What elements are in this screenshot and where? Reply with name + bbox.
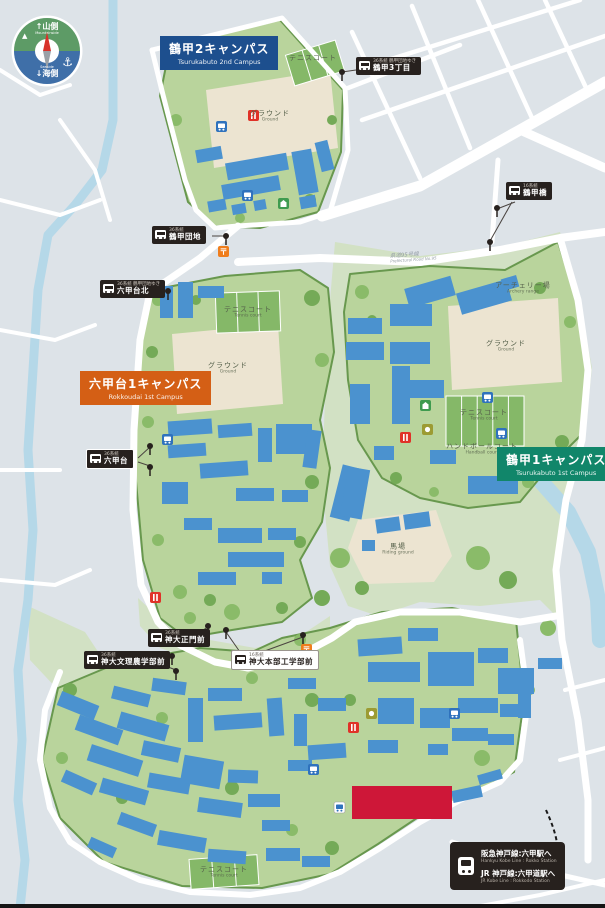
building [228, 769, 258, 783]
bus-stop-label-shindai-seimon-mae: 36系統神大正門前 [148, 629, 210, 647]
bottom-edge-bar [0, 904, 605, 908]
building [518, 688, 531, 718]
tree [56, 752, 68, 764]
building [282, 490, 308, 502]
restaurant-icon [400, 432, 411, 443]
hankyu-line-access: 阪急神戸線:六甲駅へ Hankyu Kobe Line : Rokko Stat… [481, 848, 557, 864]
tree [327, 115, 337, 125]
bus-icon [151, 633, 162, 642]
building [538, 658, 562, 669]
archery-range-label: アーチェリー場Archery range [495, 281, 551, 294]
building [208, 688, 242, 701]
road [520, 130, 605, 168]
riding-ground-label: 馬場Riding ground [382, 542, 414, 555]
road [492, 160, 498, 242]
building [162, 482, 188, 504]
building [228, 552, 284, 567]
train-icon [458, 857, 474, 875]
building [262, 820, 290, 831]
tennis-court-label: テニスコートTennis court [224, 305, 272, 318]
building [378, 698, 414, 724]
bus-stop-white-icon [334, 802, 345, 813]
building [184, 518, 212, 530]
restaurant-icon [348, 722, 359, 733]
compass-needle-icon [41, 32, 53, 70]
ground-label: グラウンドGround [250, 109, 290, 122]
campus-bus-stop-icon [449, 708, 460, 719]
tree [474, 750, 490, 766]
building [348, 318, 382, 334]
building [420, 708, 450, 728]
bus-icon [90, 454, 101, 463]
building [218, 528, 262, 543]
building [410, 380, 444, 398]
tree [204, 594, 216, 606]
bus-stop-pole [494, 205, 500, 211]
tree [184, 612, 196, 624]
bus-stop-pole [223, 627, 229, 633]
building [294, 714, 307, 746]
bus-stop-pole [487, 239, 493, 245]
tennis-court-label: テニスコートTennis court [460, 408, 508, 421]
bus-icon [103, 284, 114, 293]
red-highlight-box [352, 786, 452, 819]
station-access-box: 阪急神戸線:六甲駅へ Hankyu Kobe Line : Rokko Stat… [450, 842, 565, 890]
tree [499, 571, 517, 589]
tree [390, 472, 402, 484]
building [488, 734, 514, 745]
building [198, 572, 236, 585]
compass: ↑山側 Mountainside ▲ ⚓ Seaside ↓海側 [14, 18, 80, 84]
tree [173, 585, 187, 599]
building [390, 304, 432, 326]
building [318, 698, 346, 711]
bus-icon [359, 61, 370, 70]
campus-bus-stop-icon [216, 121, 227, 132]
tree [305, 693, 319, 707]
building [236, 488, 274, 501]
tree [540, 620, 556, 636]
tree [224, 604, 240, 620]
building [262, 572, 282, 584]
campus-bus-stop-icon [308, 764, 319, 775]
tree [355, 285, 369, 299]
bus-icon [155, 230, 166, 239]
road [0, 200, 100, 215]
tree [246, 672, 258, 684]
bus-icon [509, 186, 520, 195]
bus-stop-label-rokkodai-kita: 36系統 鶴甲団地ゆき六甲台北 [100, 280, 165, 298]
jr-line-access: JR 神戸線:六甲道駅へ JR Kobe Line : Rokkodo Stat… [481, 868, 557, 884]
tree [142, 416, 154, 428]
building [168, 443, 207, 459]
building [350, 384, 370, 424]
bus-icon [87, 655, 98, 664]
bus-stop-label-tsurukabuto-danchi: 36系統鶴甲団地 [152, 226, 206, 244]
shop-icon [420, 400, 431, 411]
bus-stop-pole [300, 632, 306, 638]
building [288, 678, 316, 689]
campus-map: 〒〒 ↑山側 Mountainside ▲ ⚓ Seaside ↓海側 鶴甲2キ… [0, 0, 605, 908]
campus-label-tsurukabuto-1st: 鶴甲1キャンパス Tsurukabuto 1st Campus [497, 447, 605, 481]
compass-seaside: Seaside ↓海側 [14, 66, 80, 79]
campus-bus-stop-icon [482, 392, 493, 403]
bus-stop-pole [165, 288, 171, 294]
building [208, 849, 247, 865]
ground-label: グラウンドGround [486, 339, 526, 352]
post-office-icon: 〒 [218, 246, 229, 257]
building [268, 528, 296, 540]
tree [466, 546, 490, 570]
tree [330, 548, 350, 568]
building [357, 636, 402, 656]
building [266, 848, 300, 861]
bus-stop-label-shindai-honbu-mae: 16系統神大本部工学部前 [231, 650, 319, 670]
bus-icon [235, 655, 246, 664]
bus-stop-label-tsurukabuto3: 36系統 鶴甲団地ゆき鶴甲3丁目 [356, 57, 421, 75]
road [0, 325, 95, 340]
tennis-court-label: テニスコート [289, 54, 337, 62]
bus-stop-label-tsurukabuto-bashi: 16系統鶴甲橋 [506, 182, 552, 200]
tree [276, 602, 288, 614]
tree [304, 290, 320, 306]
building [390, 342, 430, 364]
campus-bus-stop-icon [496, 428, 507, 439]
building [198, 286, 224, 298]
tree [225, 781, 239, 795]
bus-stop-pole [147, 464, 153, 470]
building [346, 342, 384, 360]
tree [315, 353, 329, 367]
campus-label-tsurukabuto-2nd: 鶴甲2キャンパス Tsurukabuto 2nd Campus [160, 36, 278, 70]
building [308, 743, 347, 761]
building [362, 540, 375, 551]
building [218, 423, 253, 438]
building [178, 282, 193, 318]
bus-stop-pole [339, 69, 345, 75]
building [267, 698, 285, 737]
building [253, 199, 267, 211]
bus-stop-label-rokkodai: 36系統六甲台 [86, 449, 134, 469]
building [368, 662, 420, 682]
tree [325, 841, 339, 855]
road [412, 6, 470, 148]
svg-text:〒: 〒 [220, 248, 228, 257]
building [408, 628, 438, 641]
mountain-icon: ▲ [22, 32, 27, 40]
tree [305, 475, 319, 489]
bus-stop-pole [223, 233, 229, 239]
building [248, 794, 280, 807]
tennis-court-label: テニスコートTennis court [200, 865, 248, 878]
building [452, 728, 488, 741]
building [302, 856, 330, 867]
bus-stop-pole [147, 443, 153, 449]
tree [355, 581, 369, 595]
building [428, 652, 474, 686]
tree [314, 590, 330, 606]
shop-icon [278, 198, 289, 209]
building [258, 428, 272, 462]
building [368, 740, 398, 753]
campus-label-rokkoudai-1st: 六甲台1キャンパス Rokkoudai 1st Campus [80, 371, 211, 405]
bus-stop-label-shindai-bunrino-mae: 36系統神大文理農学部前 [84, 651, 170, 669]
building [392, 366, 410, 424]
restaurant-icon [150, 592, 161, 603]
facility-icon [422, 424, 433, 435]
building [188, 698, 203, 742]
building [478, 648, 508, 663]
building [168, 418, 213, 436]
tree [564, 316, 576, 328]
building [374, 446, 394, 460]
building [428, 744, 448, 755]
tree [152, 534, 164, 546]
tree [146, 346, 158, 358]
facility-icon [366, 708, 377, 719]
ground-label: グラウンドGround [208, 361, 248, 374]
bus-stop-pole [173, 668, 179, 674]
building [458, 698, 498, 713]
road [0, 570, 90, 585]
campus-bus-stop-icon [242, 190, 253, 201]
tree [429, 487, 439, 497]
campus-bus-stop-icon [162, 434, 173, 445]
